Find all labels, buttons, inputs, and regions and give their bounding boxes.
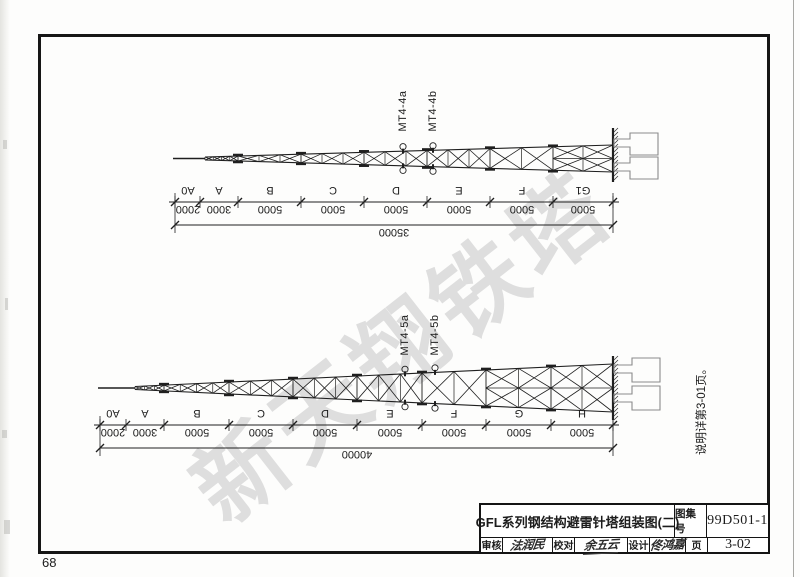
- scanned-drawing-page: 新天翔铁塔 A02000A3000B5000C5000D5000E5000F50…: [0, 0, 800, 577]
- flange-joint-label: MT4-4b: [427, 91, 439, 132]
- segment-label: G: [514, 407, 523, 419]
- design-signature: 佟鸿嘉: [650, 538, 686, 552]
- segment-label: A: [215, 184, 222, 196]
- drawing-title: GFL系列钢结构避雷针塔组装图(二): [481, 505, 675, 537]
- total-dimension: 35000: [379, 226, 410, 238]
- review-signature-text: 法润民: [509, 535, 546, 554]
- title-block-bottom-row: 审核 法润民 校对 余五云 设计 佟鸿嘉 页 3-02: [481, 538, 768, 552]
- segment-dimension: 5000: [320, 203, 344, 215]
- design-signature-text: 佟鸿嘉: [649, 535, 686, 554]
- segment-dimension: 5000: [446, 203, 470, 215]
- atlas-number-value: 99D501-1: [707, 505, 768, 537]
- dimension-text-layer: A02000A3000B5000C5000D5000E5000F5000G150…: [0, 0, 800, 577]
- segment-label: F: [451, 407, 458, 419]
- flange-joint-label: MT4-5a: [399, 315, 411, 356]
- proof-signature-text: 余五云: [583, 535, 620, 555]
- segment-label: C: [329, 184, 337, 196]
- segment-label: A0: [106, 407, 119, 419]
- review-label: 审核: [481, 538, 503, 552]
- segment-label: B: [266, 184, 273, 196]
- segment-dimension: 5000: [377, 426, 401, 438]
- flange-joint-label: MT4-5b: [429, 315, 441, 356]
- segment-label: D: [392, 184, 400, 196]
- flange-joint-label: MT4-4a: [397, 91, 409, 132]
- proof-signature: 余五云: [575, 538, 628, 552]
- segment-dimension: 3000: [133, 426, 157, 438]
- segment-label: F: [518, 184, 525, 196]
- atlas-number-label: 图集号: [675, 505, 707, 537]
- design-label: 设计: [628, 538, 650, 552]
- title-block: GFL系列钢结构避雷针塔组装图(二) 图集号 99D501-1 审核 法润民 校…: [479, 503, 770, 554]
- segment-dimension: 2000: [101, 426, 125, 438]
- page-number-value: 3-02: [708, 538, 768, 552]
- segment-label: G1: [576, 184, 591, 196]
- segment-dimension: 2000: [175, 203, 199, 215]
- side-note-text: 说明详第3-01页。: [693, 363, 709, 455]
- segment-dimension: 5000: [257, 203, 281, 215]
- proof-label: 校对: [553, 538, 575, 552]
- title-block-top-row: GFL系列钢结构避雷针塔组装图(二) 图集号 99D501-1: [481, 505, 768, 538]
- segment-label: C: [257, 407, 265, 419]
- segment-dimension: 3000: [207, 203, 231, 215]
- segment-dimension: 5000: [383, 203, 407, 215]
- page-label: 页: [686, 538, 708, 552]
- segment-label: D: [321, 407, 329, 419]
- segment-dimension: 5000: [249, 426, 273, 438]
- segment-label: A0: [181, 184, 194, 196]
- segment-dimension: 5000: [571, 203, 595, 215]
- segment-label: E: [386, 407, 393, 419]
- total-dimension: 40000: [341, 448, 372, 460]
- segment-label: A: [141, 407, 148, 419]
- segment-label: H: [578, 407, 586, 419]
- segment-dimension: 5000: [184, 426, 208, 438]
- segment-dimension: 5000: [313, 426, 337, 438]
- review-signature: 法润民: [503, 538, 553, 552]
- segment-dimension: 5000: [509, 203, 533, 215]
- segment-dimension: 5000: [570, 426, 594, 438]
- segment-label: B: [193, 407, 200, 419]
- segment-label: E: [455, 184, 462, 196]
- folio-number: 68: [42, 555, 56, 570]
- segment-dimension: 5000: [506, 426, 530, 438]
- segment-dimension: 5000: [442, 426, 466, 438]
